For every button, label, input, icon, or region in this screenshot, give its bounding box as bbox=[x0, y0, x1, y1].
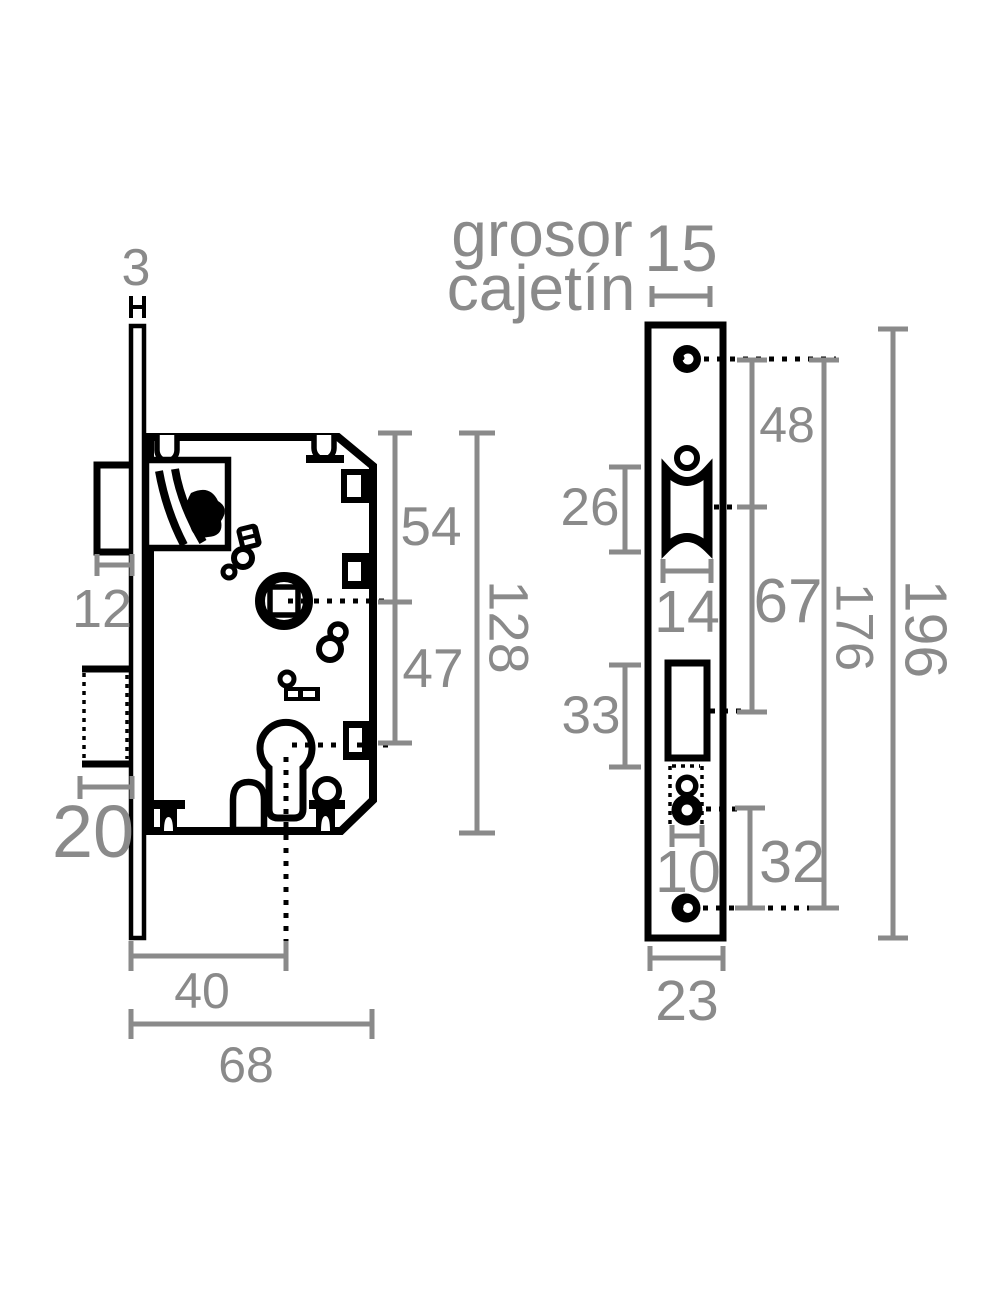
latch-bolt-side bbox=[97, 465, 133, 552]
label-faceplate-thickness: 3 bbox=[122, 239, 151, 297]
label-faceplate-height: 196 bbox=[892, 580, 958, 678]
label-top-screw-to-latch: 48 bbox=[759, 397, 815, 453]
spindle-follower bbox=[260, 577, 308, 625]
case-front-rib bbox=[144, 652, 152, 674]
deadbolt-cutout bbox=[668, 663, 707, 758]
label-latch-projection: 12 bbox=[72, 579, 132, 639]
case-front-rib bbox=[144, 773, 152, 805]
pin-detail bbox=[319, 638, 341, 660]
dim-case-thickness bbox=[652, 286, 710, 307]
caption-cajetin: cajetín bbox=[447, 252, 636, 324]
screw-post-base bbox=[306, 455, 344, 463]
label-deadbolt-projection: 20 bbox=[52, 790, 134, 873]
pin-detail bbox=[280, 672, 294, 686]
spring-housing bbox=[233, 782, 264, 830]
latch-pivot-hole bbox=[677, 448, 697, 468]
label-case-depth: 68 bbox=[218, 1037, 274, 1093]
label-latch-cutout-width: 14 bbox=[654, 579, 720, 645]
label-case-height: 128 bbox=[477, 580, 540, 673]
label-screw-spacing: 176 bbox=[824, 583, 883, 671]
pin-detail bbox=[223, 566, 235, 578]
label-faceplate-width: 23 bbox=[655, 969, 718, 1033]
deadbolt-side bbox=[82, 666, 131, 766]
pin-detail bbox=[234, 549, 252, 567]
dim-latch-projection bbox=[97, 554, 132, 576]
dim-case-depth bbox=[131, 1009, 372, 1039]
lock-technical-drawing: 3 12 20 54 47 128 40 68 bbox=[0, 0, 1000, 1300]
label-latch-to-deadbolt: 67 bbox=[754, 567, 823, 636]
latch-cutout bbox=[666, 470, 708, 548]
label-case-thickness: 15 bbox=[644, 211, 717, 285]
faceplate-thickness-bracket bbox=[131, 296, 144, 318]
label-cylinder-hole-width: 10 bbox=[655, 839, 721, 905]
label-top-to-follower: 54 bbox=[400, 495, 461, 557]
dim-faceplate-width bbox=[650, 946, 723, 971]
screw-hole-icon bbox=[673, 345, 701, 373]
label-deadbolt-cutout-height: 33 bbox=[562, 686, 621, 745]
slide-detail bbox=[284, 687, 320, 701]
label-cylinder-to-screw: 32 bbox=[759, 829, 825, 895]
case-front-rib bbox=[144, 578, 152, 632]
label-follower-to-cylinder: 47 bbox=[402, 637, 463, 699]
latch-mechanism bbox=[146, 460, 228, 548]
label-latch-cutout-height: 26 bbox=[561, 478, 620, 537]
label-backset: 40 bbox=[174, 963, 230, 1019]
